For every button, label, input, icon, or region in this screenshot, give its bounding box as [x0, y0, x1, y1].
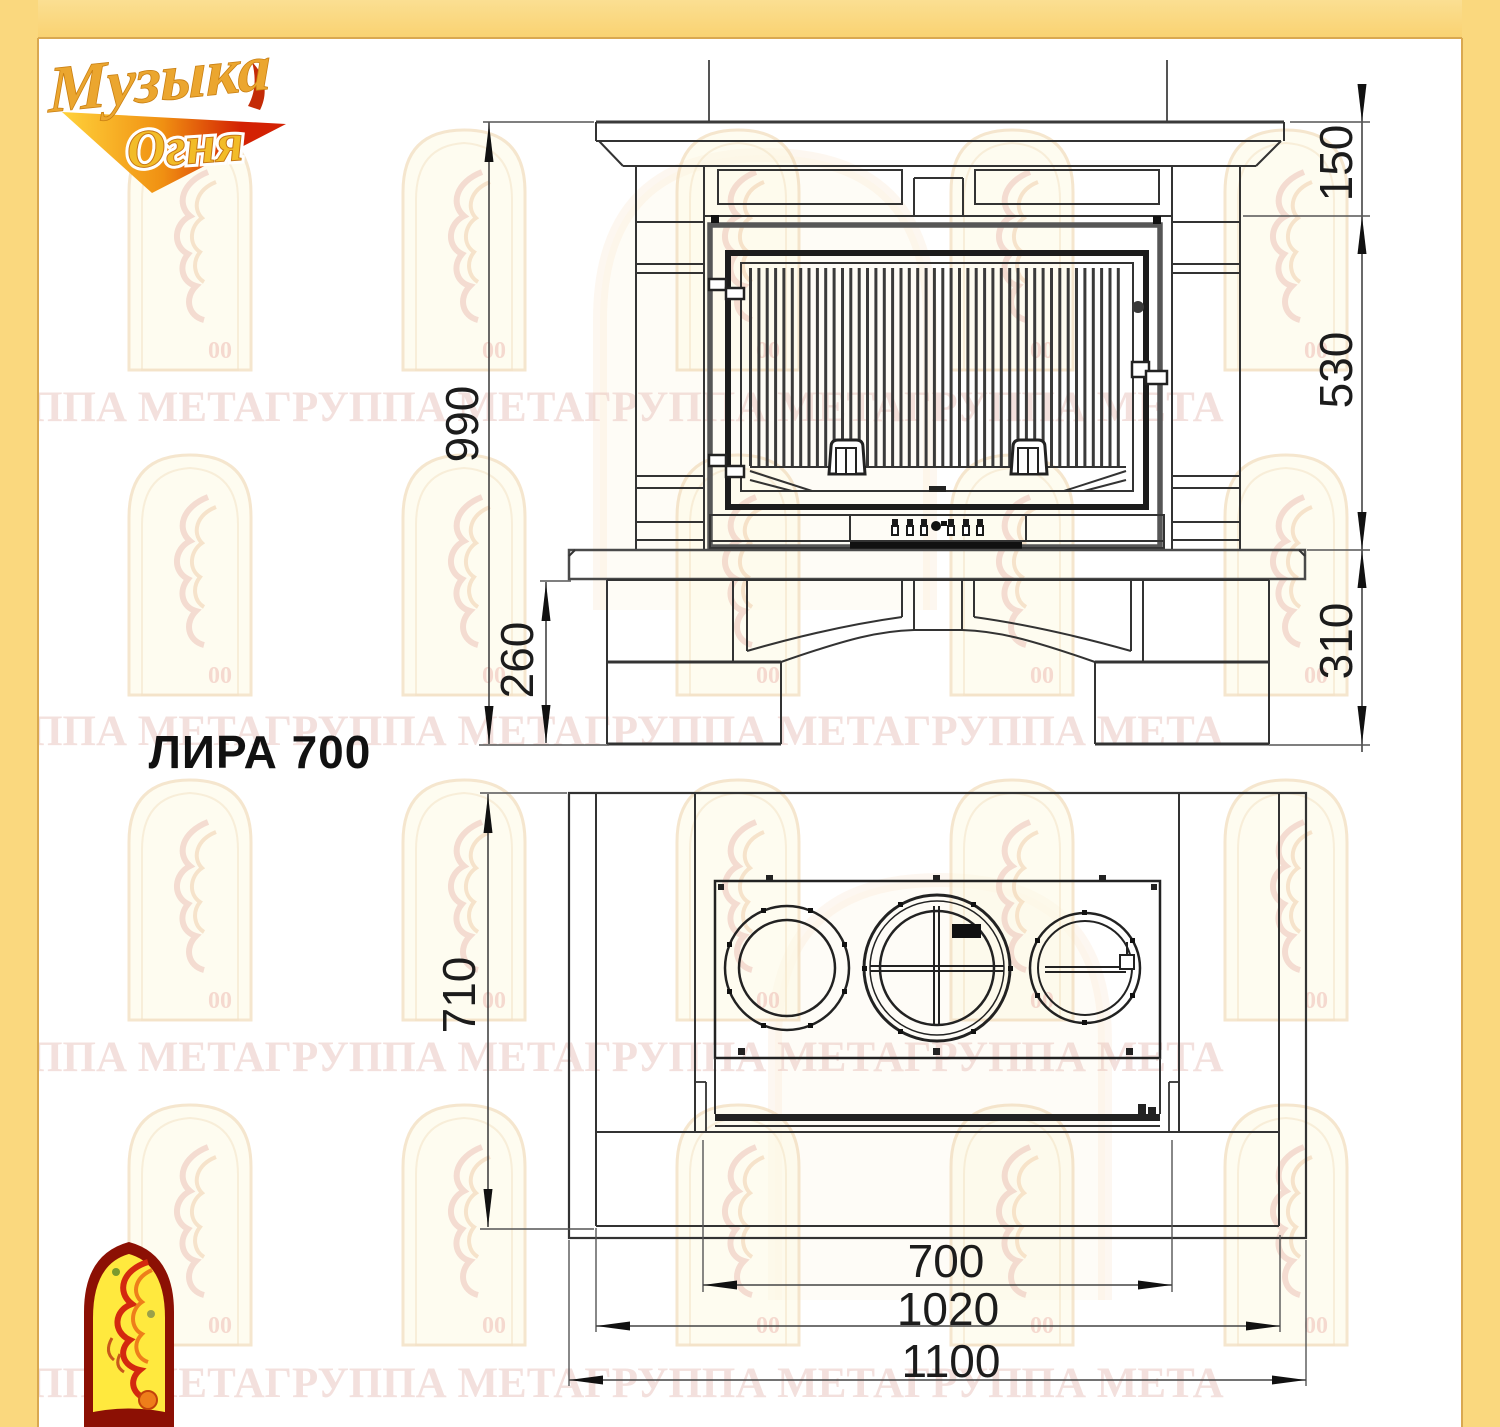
svg-text:990: 990	[436, 386, 488, 463]
svg-text:ГРУППА МЕТАГРУППА МЕТАГРУППА М: ГРУППА МЕТАГРУППА МЕТАГРУППА МЕТАГРУППА …	[0, 1360, 1224, 1407]
svg-text:ЛИРА 700: ЛИРА 700	[149, 726, 372, 778]
svg-text:ГРУППА МЕТАГРУППА МЕТАГРУППА М: ГРУППА МЕТАГРУППА МЕТАГРУППА МЕТАГРУППА …	[0, 384, 1224, 431]
svg-text:530: 530	[1310, 332, 1362, 409]
svg-text:1100: 1100	[902, 1335, 1001, 1387]
svg-text:1020: 1020	[897, 1283, 999, 1335]
svg-text:260: 260	[491, 622, 543, 699]
svg-text:Огня: Огня	[125, 112, 246, 180]
svg-text:150: 150	[1310, 125, 1362, 202]
svg-text:700: 700	[908, 1235, 985, 1287]
svg-text:710: 710	[433, 957, 485, 1034]
svg-text:310: 310	[1310, 603, 1362, 680]
